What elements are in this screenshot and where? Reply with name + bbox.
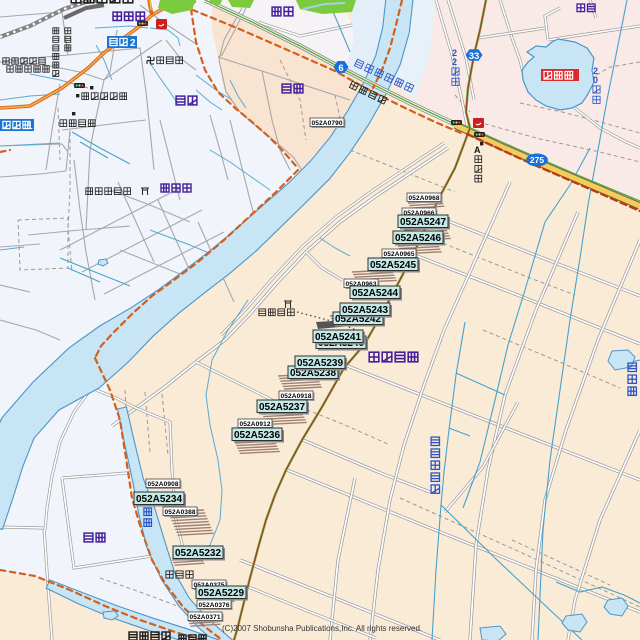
svg-text:052A5246: 052A5246 <box>395 233 441 244</box>
svg-text:052A0371: 052A0371 <box>190 614 221 621</box>
svg-text:052A5244: 052A5244 <box>352 288 398 299</box>
svg-text:052A0968: 052A0968 <box>409 195 440 202</box>
svg-text:0: 0 <box>593 75 598 85</box>
svg-text:1: 1 <box>27 121 33 132</box>
svg-text:052A0918: 052A0918 <box>281 393 312 400</box>
svg-text:052A0376: 052A0376 <box>199 602 230 609</box>
svg-text:2: 2 <box>130 38 136 49</box>
svg-text:052A0908: 052A0908 <box>148 481 179 488</box>
svg-text:052A0965: 052A0965 <box>384 251 415 258</box>
svg-text:052A0388: 052A0388 <box>165 509 196 516</box>
svg-text:052A5243: 052A5243 <box>342 305 388 316</box>
svg-text:052A5237: 052A5237 <box>259 402 305 413</box>
svg-text:(C)2007 Shobunsha Publications: (C)2007 Shobunsha Publications,Inc. All … <box>222 624 422 633</box>
svg-text:052A5239: 052A5239 <box>297 358 343 369</box>
svg-text:052A0912: 052A0912 <box>240 421 271 428</box>
svg-text:052A5234: 052A5234 <box>136 494 182 505</box>
svg-text:A: A <box>474 145 481 155</box>
svg-text:052A5245: 052A5245 <box>370 260 416 271</box>
svg-text:052A5247: 052A5247 <box>400 217 446 228</box>
svg-text:33: 33 <box>469 51 480 62</box>
svg-text:6: 6 <box>338 63 343 74</box>
svg-text:275: 275 <box>530 155 544 165</box>
svg-text:052A5229: 052A5229 <box>198 588 244 599</box>
svg-text:052A5232: 052A5232 <box>175 548 221 559</box>
svg-text:2: 2 <box>452 57 457 67</box>
svg-text:052A5241: 052A5241 <box>315 332 361 343</box>
svg-text:052A5236: 052A5236 <box>234 430 280 441</box>
svg-text:052A0790: 052A0790 <box>312 120 343 127</box>
